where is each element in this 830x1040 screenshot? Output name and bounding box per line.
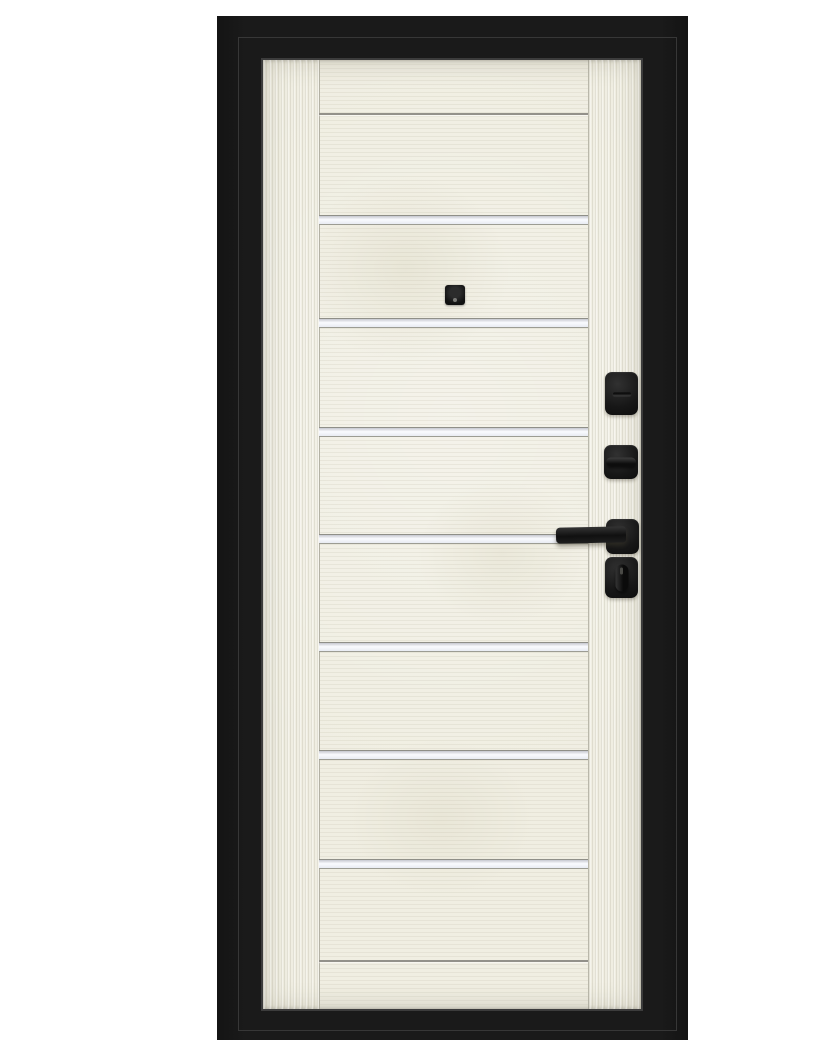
glass-insert-strip	[319, 318, 588, 328]
key-cylinder	[615, 564, 628, 591]
key-notch	[620, 567, 623, 574]
peephole-lens	[453, 298, 457, 302]
left-stile	[263, 60, 320, 1009]
keyhole-escutcheon	[605, 372, 638, 415]
glass-insert-strip	[319, 534, 588, 544]
peephole	[445, 285, 465, 305]
thumbturn-escutcheon	[604, 445, 638, 479]
panel-groove	[319, 960, 588, 962]
door-leaf	[263, 60, 641, 1009]
door-product-photo	[217, 16, 688, 1040]
cylinder-escutcheon	[605, 557, 638, 598]
glass-insert-strip	[319, 427, 588, 437]
handle-lever	[556, 526, 626, 543]
glass-insert-strip	[319, 750, 588, 760]
thumbturn-knob	[606, 458, 636, 467]
glass-insert-strip	[319, 859, 588, 869]
glass-insert-strip	[319, 215, 588, 225]
panel-groove	[319, 113, 588, 115]
keyhole-slot	[613, 392, 631, 395]
glass-insert-strip	[319, 642, 588, 652]
